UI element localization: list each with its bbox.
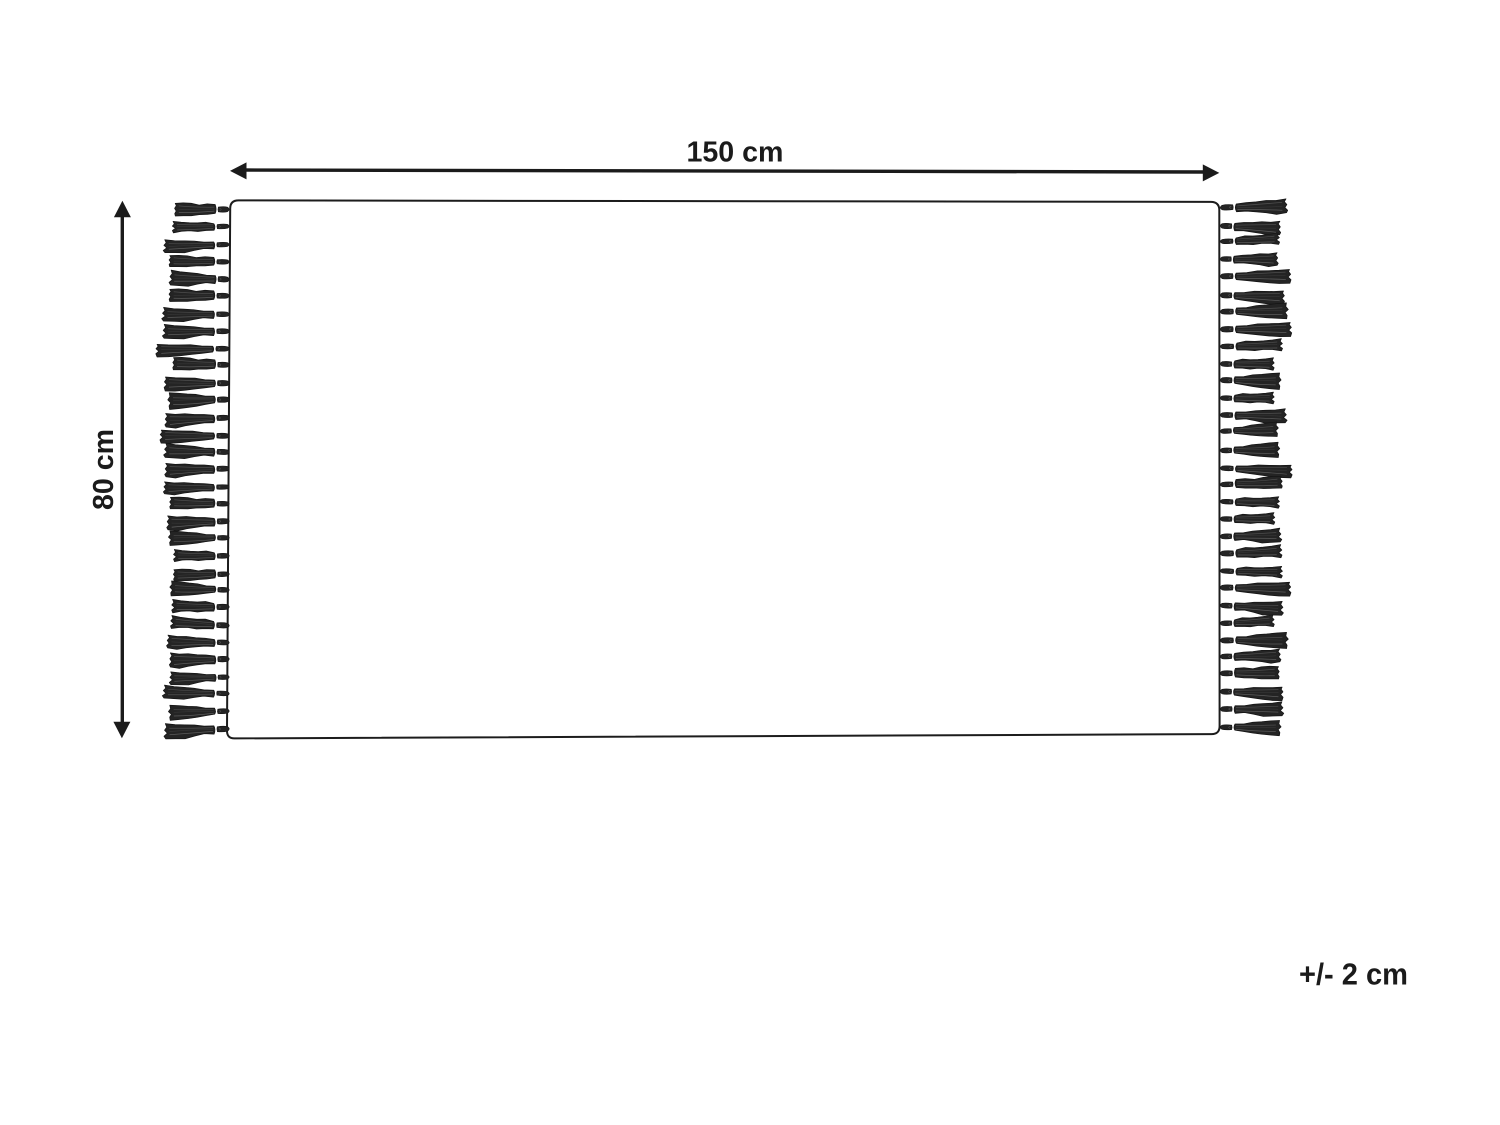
- svg-text:150 cm: 150 cm: [687, 137, 784, 169]
- svg-text:80 cm: 80 cm: [88, 429, 120, 510]
- svg-text:+/- 2 cm: +/- 2 cm: [1299, 957, 1408, 992]
